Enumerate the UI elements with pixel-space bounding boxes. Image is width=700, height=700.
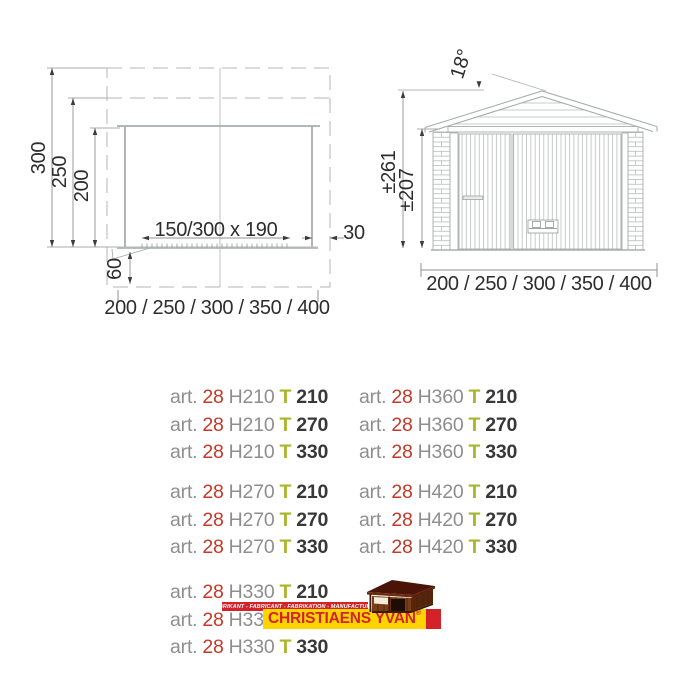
- article-size: 330: [296, 634, 328, 662]
- article-t-label: T: [280, 384, 292, 412]
- article-row: art. 28 H210 T 270: [170, 412, 328, 440]
- article-row: art. 28 H270 T 210: [170, 479, 328, 507]
- article-t-label: T: [280, 534, 292, 562]
- article-row: art. 28 H420 T 330: [359, 534, 517, 562]
- article-prefix: art.: [359, 439, 386, 467]
- article-row: art. 28 H360 T 270: [359, 412, 517, 440]
- article-prefix: art.: [359, 384, 386, 412]
- plan-max-outline: [107, 68, 330, 287]
- front-elevation: 18° ±261 ±207 200 / 250 / 300 / 350 / 40…: [378, 47, 665, 295]
- article-list-right-block-1: art. 28 H360 T 210 art. 28 H360 T 270 ar…: [359, 384, 517, 467]
- article-series: 28: [202, 412, 223, 440]
- article-height-code: H360: [418, 439, 464, 467]
- article-size: 270: [485, 412, 517, 440]
- article-size: 210: [296, 384, 328, 412]
- plan-door-track: [140, 244, 290, 249]
- door-header-band: [448, 127, 638, 133]
- article-size: 270: [485, 507, 517, 535]
- article-list-right-block-2: art. 28 H420 T 210 art. 28 H420 T 270 ar…: [359, 479, 517, 562]
- article-series: 28: [202, 384, 223, 412]
- manufacturer-logo: FABRIKANT - FABRICANT - FABRIKATION - MA…: [217, 576, 445, 634]
- plan-door-offset-label: 60: [104, 258, 126, 280]
- article-size: 330: [485, 534, 517, 562]
- article-series: 28: [391, 439, 412, 467]
- article-series: 28: [202, 439, 223, 467]
- logo-shed-illustration: [365, 579, 437, 613]
- article-t-label: T: [280, 507, 292, 535]
- article-size: 330: [485, 439, 517, 467]
- article-prefix: art.: [359, 534, 386, 562]
- article-prefix: art.: [170, 412, 197, 440]
- article-size: 270: [296, 507, 328, 535]
- article-t-label: T: [469, 384, 481, 412]
- article-list-left-block-1: art. 28 H210 T 210 art. 28 H210 T 270 ar…: [170, 384, 328, 467]
- article-prefix: art.: [359, 412, 386, 440]
- article-series: 28: [391, 384, 412, 412]
- article-height-code: H210: [229, 439, 275, 467]
- article-prefix: art.: [359, 507, 386, 535]
- plan-depth-250-label: 250: [49, 156, 71, 189]
- article-prefix: art.: [170, 507, 197, 535]
- article-series: 28: [391, 412, 412, 440]
- article-t-label: T: [469, 507, 481, 535]
- article-t-label: T: [469, 412, 481, 440]
- elevation-width-options-label: 200 / 250 / 300 / 350 / 400: [426, 273, 652, 295]
- pedestrian-door: [459, 134, 511, 249]
- article-t-label: T: [469, 479, 481, 507]
- article-prefix: art.: [170, 384, 197, 412]
- article-height-code: H270: [229, 479, 275, 507]
- plan-depth-300-label: 300: [28, 142, 50, 175]
- article-row: art. 28 H420 T 270: [359, 507, 517, 535]
- pedestrian-door-handle: [463, 196, 483, 200]
- article-series: 28: [202, 479, 223, 507]
- article-row: art. 28 H360 T 330: [359, 439, 517, 467]
- article-size: 210: [485, 479, 517, 507]
- article-size: 210: [296, 479, 328, 507]
- article-prefix: art.: [170, 634, 197, 662]
- article-height-code: H210: [229, 384, 275, 412]
- article-t-label: T: [280, 439, 292, 467]
- article-row: art. 28 H420 T 210: [359, 479, 517, 507]
- technical-drawings: 300 250 200 150/300 x 190 30 60 200 / 25…: [0, 0, 700, 330]
- article-height-code: H420: [418, 479, 464, 507]
- article-row: art. 28 H210 T 210: [170, 384, 328, 412]
- article-series: 28: [202, 507, 223, 535]
- article-prefix: art.: [170, 534, 197, 562]
- article-t-label: T: [280, 479, 292, 507]
- article-prefix: art.: [170, 479, 197, 507]
- article-height-code: H210: [229, 412, 275, 440]
- article-size: 330: [296, 534, 328, 562]
- article-prefix: art.: [170, 439, 197, 467]
- article-height-code: H360: [418, 412, 464, 440]
- page: 300 250 200 150/300 x 190 30 60 200 / 25…: [0, 0, 700, 700]
- article-series: 28: [391, 479, 412, 507]
- article-row: art. 28 H330 T 330: [170, 634, 328, 662]
- article-t-label: T: [469, 534, 481, 562]
- article-series: 28: [202, 534, 223, 562]
- garage-door-lock-plate: [528, 220, 558, 233]
- article-list-left-block-2: art. 28 H270 T 210 art. 28 H270 T 270 ar…: [170, 479, 328, 562]
- article-prefix: art.: [170, 607, 197, 635]
- article-size: 210: [485, 384, 517, 412]
- article-size: 270: [296, 412, 328, 440]
- floor-plan: 300 250 200 150/300 x 190 30 60 200 / 25…: [28, 68, 365, 319]
- article-row: art. 28 H210 T 330: [170, 439, 328, 467]
- article-height-code: H270: [229, 534, 275, 562]
- plan-depth-200-label: 200: [71, 170, 93, 203]
- article-row: art. 28 H360 T 210: [359, 384, 517, 412]
- article-size: 330: [296, 439, 328, 467]
- article-row: art. 28 H270 T 270: [170, 507, 328, 535]
- article-series: 28: [391, 534, 412, 562]
- article-height-code: H420: [418, 507, 464, 535]
- article-t-label: T: [280, 634, 292, 662]
- plan-width-options-label: 200 / 250 / 300 / 350 / 400: [104, 297, 330, 319]
- wall-height-label: ±207: [396, 168, 418, 211]
- article-series: 28: [202, 634, 223, 662]
- plan-overhang-label: 30: [343, 222, 365, 244]
- article-prefix: art.: [170, 579, 197, 607]
- article-height-code: H360: [418, 384, 464, 412]
- article-t-label: T: [280, 412, 292, 440]
- plan-door-size-label: 150/300 x 190: [155, 219, 278, 241]
- article-height-code: H270: [229, 507, 275, 535]
- roof-angle-label: 18°: [446, 47, 476, 82]
- article-series: 28: [391, 507, 412, 535]
- article-height-code: H330: [229, 634, 275, 662]
- article-t-label: T: [469, 439, 481, 467]
- article-prefix: art.: [359, 479, 386, 507]
- article-row: art. 28 H270 T 330: [170, 534, 328, 562]
- article-height-code: H420: [418, 534, 464, 562]
